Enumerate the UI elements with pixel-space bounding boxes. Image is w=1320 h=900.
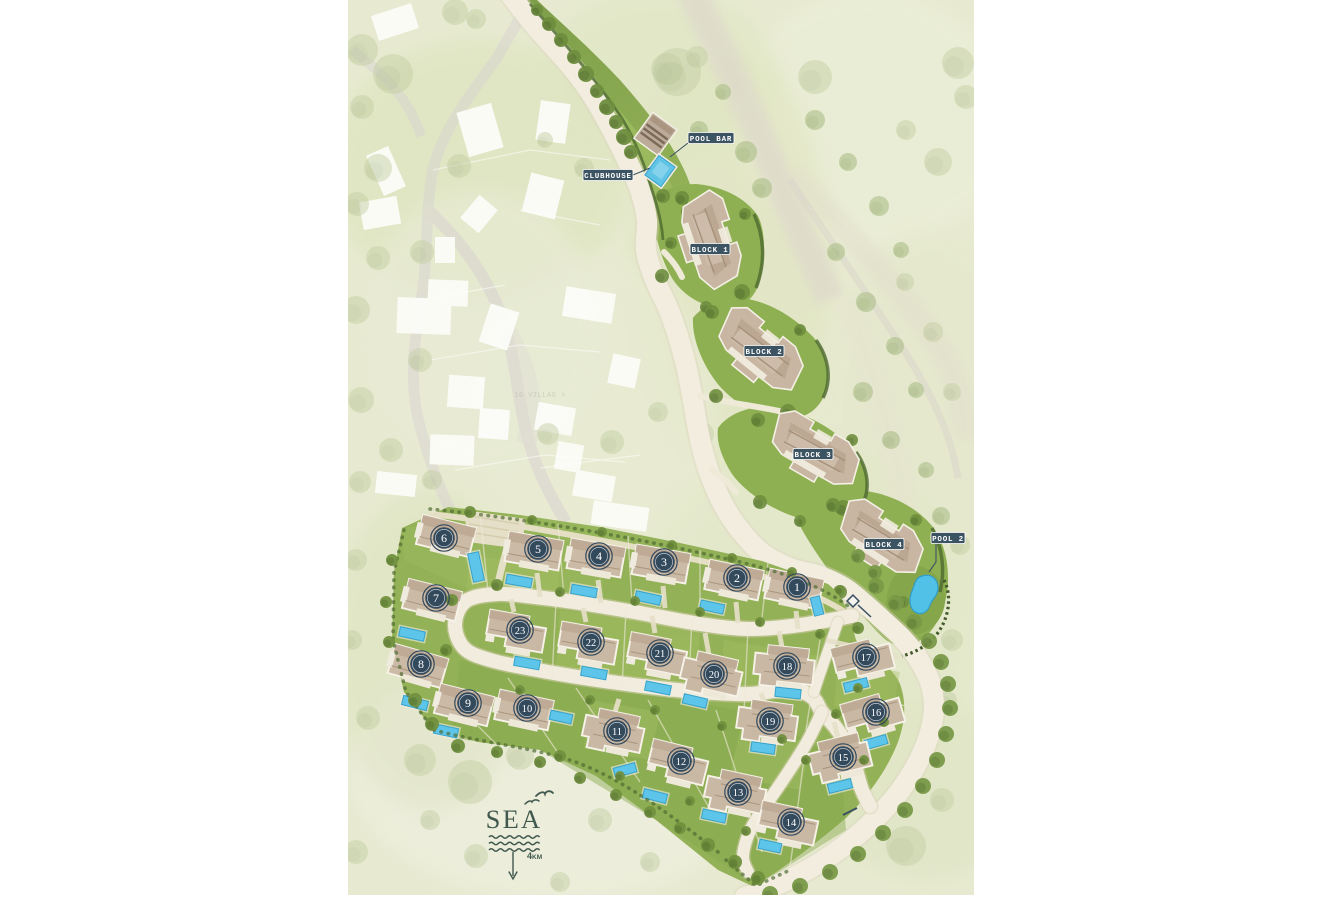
svg-text:SEA: SEA [486,804,543,834]
svg-text:20: 20 [709,670,720,681]
svg-text:CLUBHOUSE: CLUBHOUSE [584,173,632,181]
svg-text:4: 4 [596,549,602,563]
svg-text:12: 12 [676,757,687,768]
svg-text:13: 13 [733,788,744,799]
svg-text:11: 11 [612,727,622,738]
svg-text:10: 10 [522,704,533,715]
svg-text:3: 3 [661,555,667,569]
svg-text:BLOCK 4: BLOCK 4 [865,542,902,550]
svg-text:21: 21 [655,649,666,660]
svg-text:POOL 2: POOL 2 [932,536,964,544]
svg-text:17: 17 [861,653,872,664]
svg-text:14: 14 [786,818,797,829]
svg-text:15: 15 [838,753,849,764]
svg-text:BLOCK 1: BLOCK 1 [691,247,728,255]
svg-text:18: 18 [782,662,793,673]
svg-text:BLOCK 3: BLOCK 3 [794,452,831,460]
svg-text:5: 5 [535,542,541,556]
svg-text:7: 7 [433,591,439,605]
svg-text:9: 9 [465,696,471,710]
svg-text:1: 1 [794,580,800,594]
svg-text:POOL BAR: POOL BAR [690,136,732,144]
svg-text:16: 16 [871,708,882,719]
svg-text:22: 22 [586,638,597,649]
svg-text:19: 19 [765,717,776,728]
svg-text:6: 6 [441,531,447,545]
svg-text:23: 23 [515,626,526,637]
svg-text:8: 8 [418,657,424,671]
svg-text:16 VILLAS >: 16 VILLAS > [514,392,566,400]
svg-text:2: 2 [734,571,740,585]
svg-text:BLOCK 2: BLOCK 2 [745,349,782,357]
